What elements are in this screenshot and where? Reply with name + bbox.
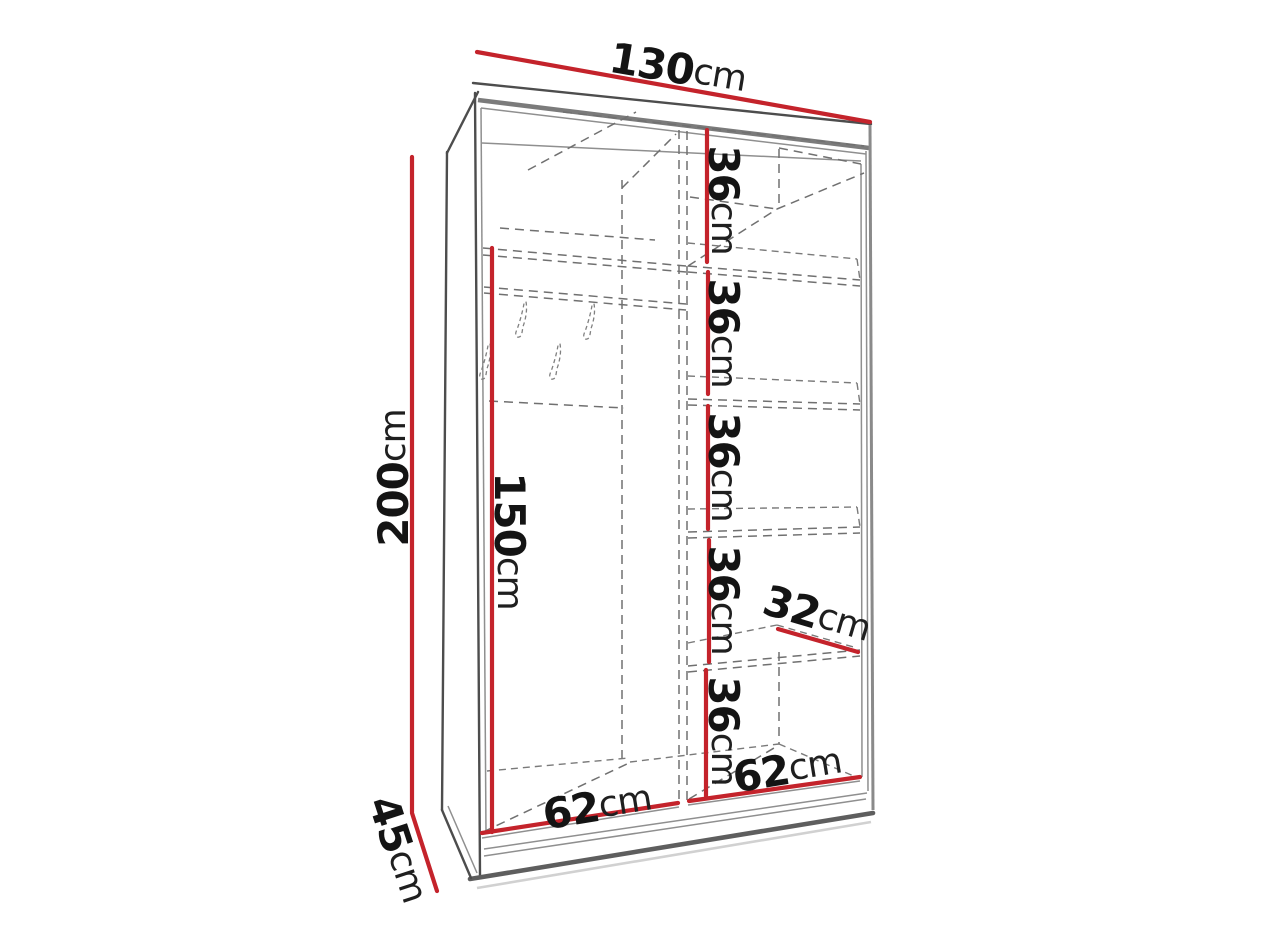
shelf-spacing-label-2: 36cm: [700, 278, 749, 387]
ceiling-back-edge: [482, 143, 861, 161]
left-outer-edge: [442, 152, 447, 810]
hook-icon: [479, 343, 491, 380]
hook-group: [479, 301, 595, 380]
hanging-height-dimension-label: 150cm: [486, 472, 535, 610]
depth-dimension-label: 45cm: [359, 789, 439, 908]
right-section-width-label: 62cm: [729, 736, 845, 802]
shelf2-front-edge-2: [688, 405, 860, 410]
hook-board-bottom-edge: [489, 401, 624, 408]
shelf1-depth-edge: [857, 259, 860, 280]
bottom-outer-edge: [470, 813, 873, 879]
shelf3-front-edge-1: [688, 527, 860, 532]
interior-hidden-lines: [483, 112, 864, 832]
left-section-width-label: 62cm: [539, 773, 655, 839]
width-dimension-label: 130cm: [606, 32, 750, 103]
back-top-edge: [563, 112, 864, 146]
hook-icon: [549, 343, 561, 380]
wardrobe-dimension-diagram: 130cm 200cm 45cm 150cm 36cm 36cm 36cm 36…: [0, 0, 1262, 947]
divider-top-depth-diagonal: [622, 134, 676, 188]
shelf4-front-edge-2: [688, 656, 860, 672]
left-top-bevel-edge: [447, 92, 478, 153]
height-dimension-label: 200cm: [369, 409, 418, 547]
floor-back-edge-left: [487, 758, 629, 771]
left-foot-outer-edge: [442, 810, 471, 878]
shelf2-front-edge-1: [688, 399, 860, 404]
dimension-labels: 130cm 200cm 45cm 150cm 36cm 36cm 36cm 36…: [359, 32, 877, 908]
left-foot-inner-edge: [448, 806, 477, 873]
shelf-spacing-label-4: 36cm: [700, 545, 749, 654]
bottom-shadow: [477, 822, 871, 888]
hook-icon: [515, 301, 527, 338]
left-wall-inner-edge: [481, 108, 486, 834]
shelf-spacing-label-3: 36cm: [700, 412, 749, 521]
shelf3-depth-edge: [857, 507, 860, 527]
shelf-spacing-label-1: 36cm: [700, 145, 749, 254]
hook-icon: [583, 303, 595, 340]
shelf3-front-edge-2: [688, 533, 860, 538]
top-inner-edge: [481, 108, 866, 154]
right-wall-interior-edge: [861, 164, 862, 777]
shelf2-depth-edge: [857, 383, 860, 404]
left-shelf-back-edge: [500, 228, 655, 240]
right-wall-outer-inner-edge: [866, 151, 868, 791]
back-top-right-edge: [779, 148, 861, 164]
right-back-corner-right-arm: [777, 173, 864, 209]
front-left-edge: [475, 93, 480, 876]
diagram-canvas: 130cm 200cm 45cm 150cm 36cm 36cm 36cm 36…: [0, 0, 1262, 947]
right-outer-edge: [870, 125, 873, 810]
